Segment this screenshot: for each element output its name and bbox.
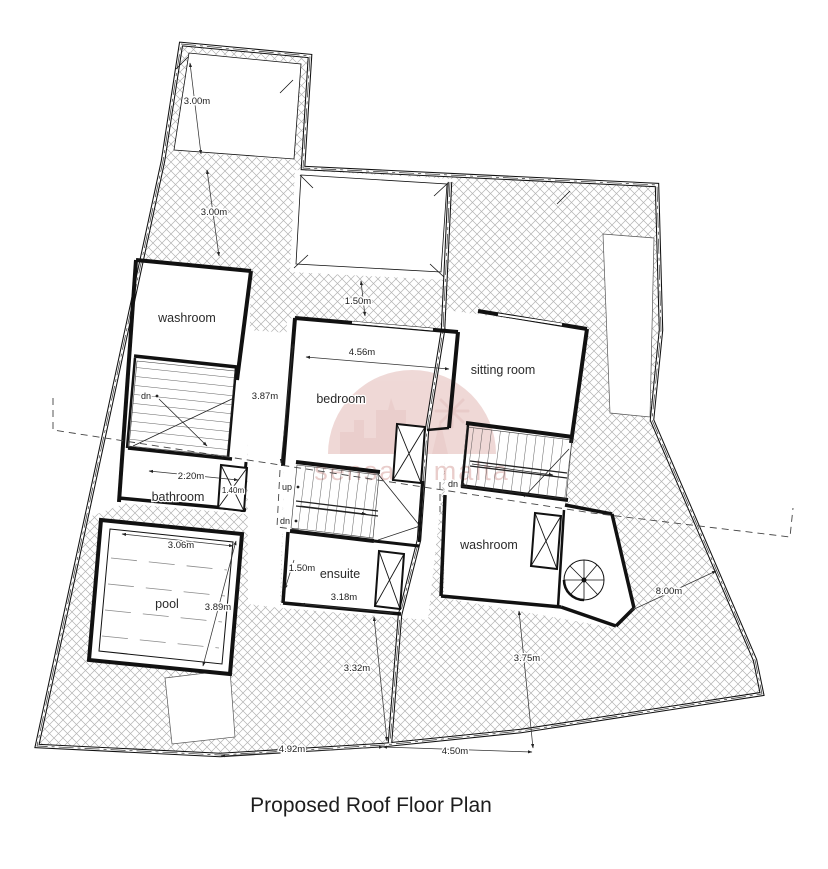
dim-rear-left: 3.32m bbox=[344, 663, 370, 674]
stairs-left bbox=[129, 361, 235, 456]
label-up-middle: up bbox=[282, 482, 292, 492]
dim-stair-width: 2.20m bbox=[178, 471, 204, 482]
floor-plan-canvas: sensara malta bbox=[0, 0, 828, 869]
dim-pool-width: 3.06m bbox=[168, 540, 194, 551]
dim-bottom-right: 4.50m bbox=[442, 746, 468, 757]
spiral-stair bbox=[564, 560, 604, 600]
label-washroom-right: washroom bbox=[459, 538, 518, 552]
label-sitting-room: sitting room bbox=[471, 363, 536, 377]
label-dn-left: dn bbox=[141, 391, 151, 401]
label-washroom-left: washroom bbox=[157, 311, 216, 325]
dim-ensuite-width: 3.18m bbox=[331, 592, 357, 603]
label-dn-middle: dn bbox=[280, 516, 290, 526]
dim-bottom-left: 4.92m bbox=[279, 744, 305, 755]
dim-bedroom-width: 4.56m bbox=[349, 347, 375, 358]
dim-top-terrace: 3.00m bbox=[201, 207, 227, 218]
label-dn-right: dn bbox=[448, 479, 458, 489]
dim-duct-width: 1.40m bbox=[222, 486, 245, 495]
dim-courtyard-gap: 1.50m bbox=[345, 296, 371, 307]
dim-ensuite-height: 1.50m bbox=[289, 563, 315, 574]
dim-top-roof: 3.00m bbox=[184, 96, 210, 107]
label-pool: pool bbox=[155, 597, 179, 611]
stairs-right bbox=[461, 427, 572, 499]
dim-bedroom-depth: 3.87m bbox=[252, 391, 278, 402]
page-title: Proposed Roof Floor Plan bbox=[250, 794, 492, 817]
dim-pool-length: 3.89m bbox=[205, 602, 231, 613]
label-ensuite: ensuite bbox=[320, 567, 360, 581]
dim-rear-right: 3.75m bbox=[514, 653, 540, 664]
dim-side-right: 8.00m bbox=[656, 586, 682, 597]
label-bedroom: bedroom bbox=[316, 392, 365, 406]
label-bathroom: bathroom bbox=[152, 490, 205, 504]
floor-plan-page: sensara malta bbox=[0, 0, 828, 869]
